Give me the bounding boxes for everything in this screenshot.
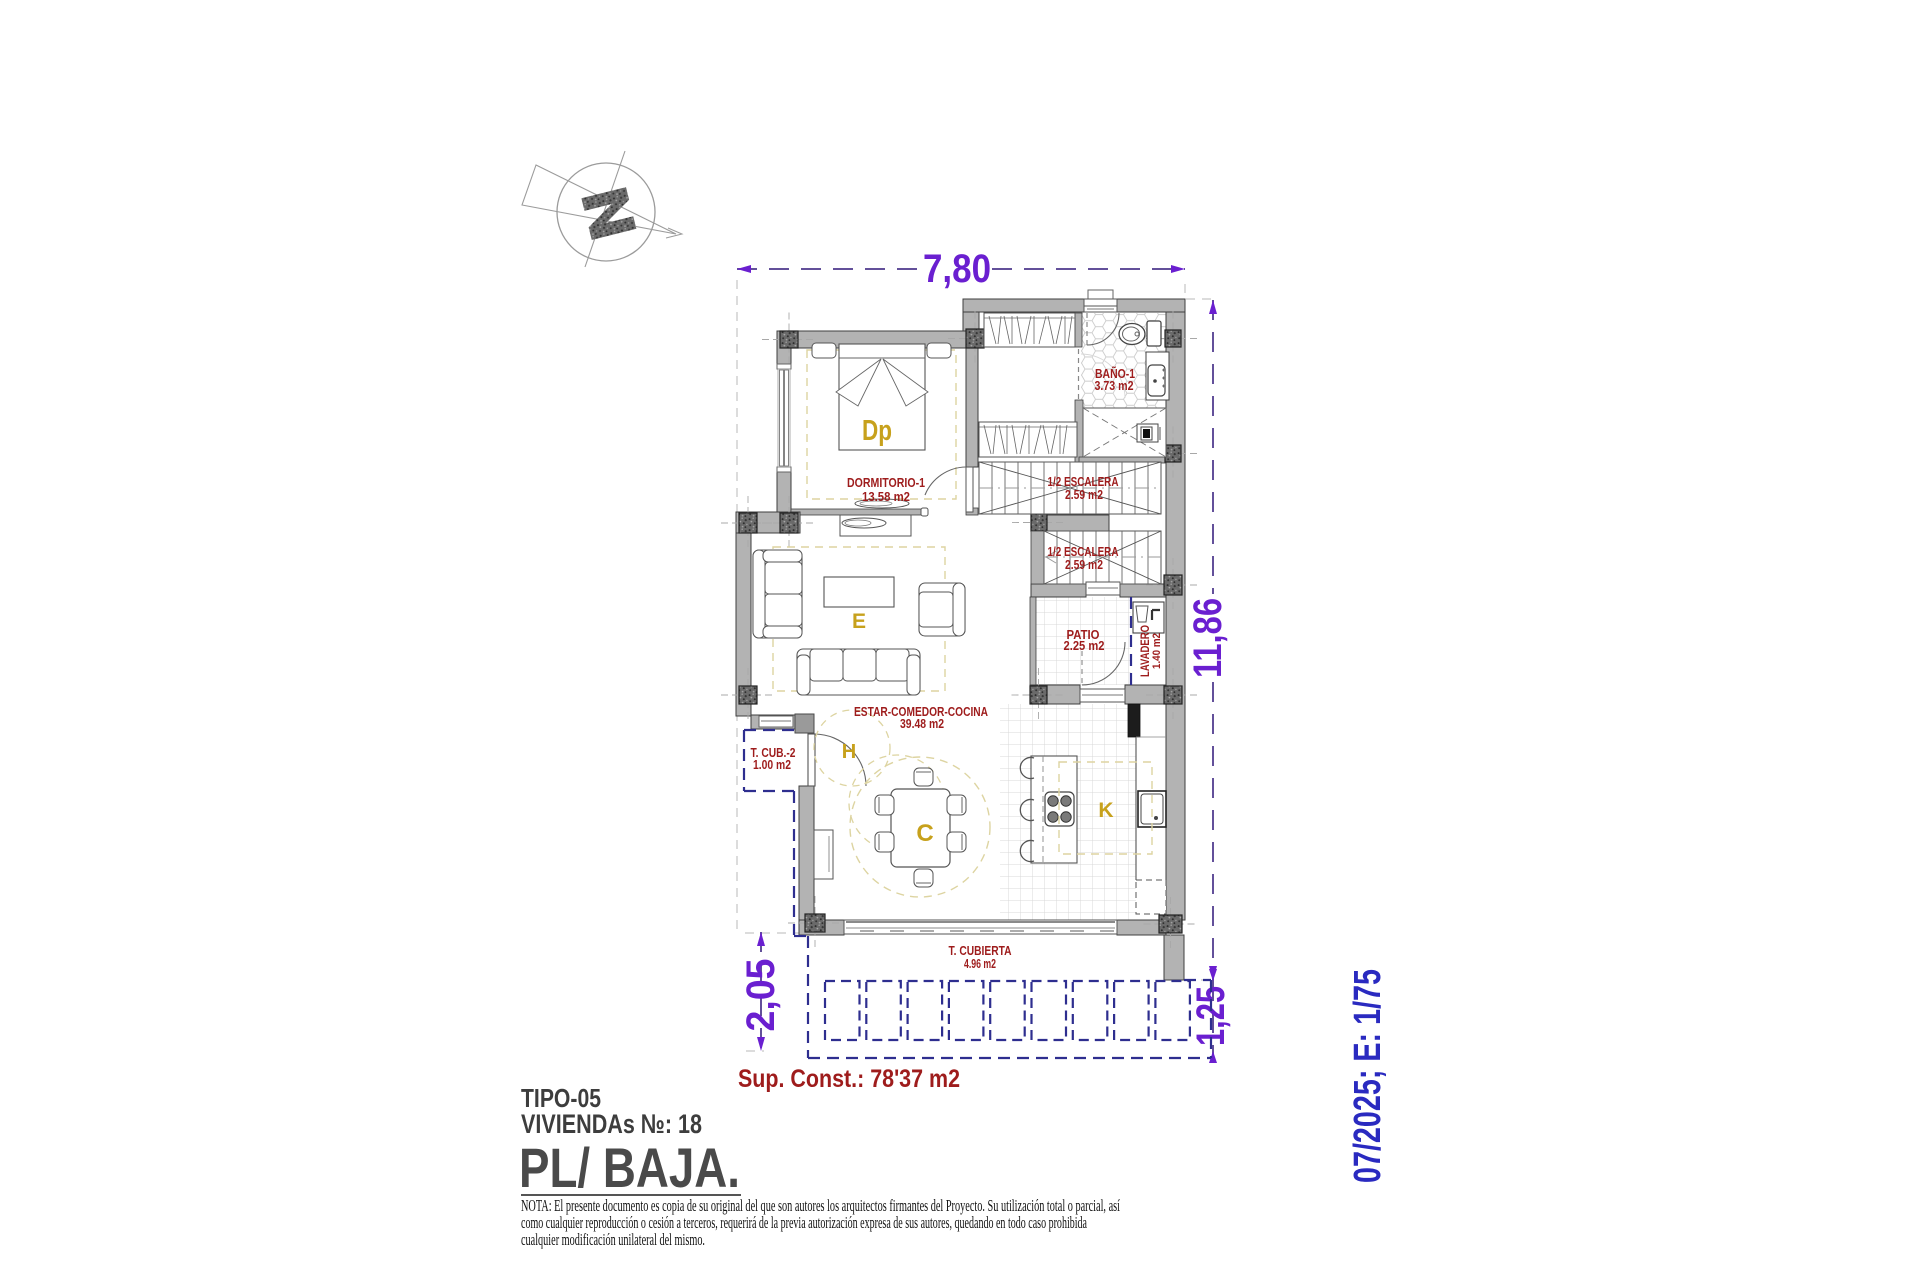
svg-text:2.25 m2: 2.25 m2 (1064, 639, 1105, 653)
svg-text:T. CUBIERTA: T. CUBIERTA (949, 943, 1012, 958)
svg-text:Sup. Const.: 78'37 m2: Sup. Const.: 78'37 m2 (738, 1065, 960, 1093)
svg-text:1.00 m2: 1.00 m2 (753, 758, 791, 772)
svg-text:2.59 m2: 2.59 m2 (1065, 488, 1103, 502)
svg-text:07/2025; E: 1/75: 07/2025; E: 1/75 (1347, 969, 1389, 1183)
svg-text:4.96 m2: 4.96 m2 (964, 957, 996, 971)
svg-text:cualquier modificación unilate: cualquier modificación unilateral del mi… (521, 1230, 705, 1249)
svg-text:LAVADERO: LAVADERO (1138, 625, 1152, 677)
svg-text:H: H (842, 741, 856, 763)
svg-text:DORMITORIO-1: DORMITORIO-1 (847, 475, 925, 490)
svg-text:K: K (1098, 799, 1113, 822)
svg-text:13.58 m2: 13.58 m2 (862, 490, 910, 504)
svg-text:3.73 m2: 3.73 m2 (1095, 379, 1134, 393)
svg-text:1/2 ESCALERA: 1/2 ESCALERA (1048, 474, 1119, 489)
svg-text:VIVIENDAs №: 18: VIVIENDAs №: 18 (521, 1109, 702, 1139)
svg-text:2,05: 2,05 (739, 959, 783, 1032)
svg-text:C: C (916, 820, 933, 847)
svg-text:PL/ BAJA.: PL/ BAJA. (519, 1136, 740, 1199)
svg-text:1.40 m2: 1.40 m2 (1151, 633, 1163, 669)
svg-text:7,80: 7,80 (923, 247, 991, 291)
svg-text:1/2 ESCALERA: 1/2 ESCALERA (1048, 544, 1119, 559)
svg-text:Dp: Dp (862, 415, 892, 447)
svg-text:39.48 m2: 39.48 m2 (900, 717, 944, 731)
svg-text:11,86: 11,86 (1186, 598, 1230, 678)
svg-text:2.59 m2: 2.59 m2 (1065, 558, 1103, 572)
svg-text:E: E (852, 610, 866, 633)
